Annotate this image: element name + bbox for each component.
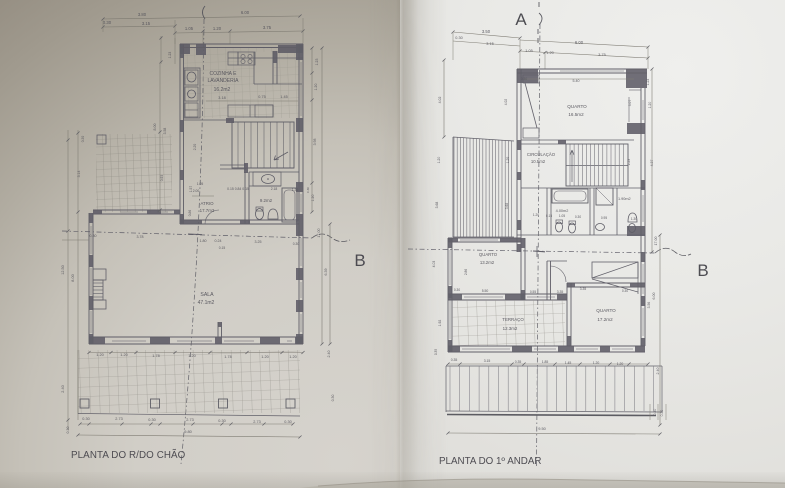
svg-text:1.20: 1.20 xyxy=(617,362,624,366)
svg-text:1.92: 1.92 xyxy=(438,320,442,327)
svg-text:2.20: 2.20 xyxy=(193,144,197,151)
svg-text:12.50: 12.50 xyxy=(61,265,65,275)
svg-text:CIRCULAÇÃO: CIRCULAÇÃO xyxy=(527,152,556,157)
svg-text:3.80: 3.80 xyxy=(138,12,147,17)
svg-text:0.86: 0.86 xyxy=(188,210,192,217)
svg-text:3.25: 3.25 xyxy=(255,240,262,244)
svg-text:0.30: 0.30 xyxy=(103,20,112,25)
svg-text:0.55: 0.55 xyxy=(530,290,536,294)
svg-text:16.5m2: 16.5m2 xyxy=(568,112,584,117)
svg-text:9.2m2: 9.2m2 xyxy=(260,198,273,203)
svg-text:2.18: 2.18 xyxy=(271,187,278,191)
svg-text:1.20: 1.20 xyxy=(96,353,103,357)
svg-text:QUARTO: QUARTO xyxy=(479,252,498,257)
svg-text:3.75: 3.75 xyxy=(598,53,605,57)
svg-text:1.05: 1.05 xyxy=(559,214,565,218)
svg-text:1.20: 1.20 xyxy=(289,355,296,359)
svg-text:16.2m2: 16.2m2 xyxy=(214,87,231,93)
svg-text:1.23: 1.23 xyxy=(646,79,650,86)
svg-text:0.30: 0.30 xyxy=(521,77,527,81)
svg-text:0.15 0.84 0.15: 0.15 0.84 0.15 xyxy=(227,187,249,191)
svg-text:2.86: 2.86 xyxy=(464,269,468,275)
svg-text:3.07: 3.07 xyxy=(628,100,632,107)
svg-text:17.2m2: 17.2m2 xyxy=(597,317,613,322)
svg-text:0.30: 0.30 xyxy=(218,419,225,423)
svg-text:COZINHA E: COZINHA E xyxy=(210,71,238,77)
svg-text:QUARTO: QUARTO xyxy=(596,308,616,313)
svg-text:0.30: 0.30 xyxy=(331,395,335,402)
svg-text:4.02: 4.02 xyxy=(438,97,442,104)
svg-text:1.20: 1.20 xyxy=(314,84,318,91)
svg-text:5.40: 5.40 xyxy=(573,79,580,83)
svg-text:1.78: 1.78 xyxy=(152,354,159,358)
svg-text:0.24: 0.24 xyxy=(215,239,222,243)
svg-text:1.23: 1.23 xyxy=(315,59,319,66)
svg-text:1.20: 1.20 xyxy=(546,51,553,55)
svg-text:0.30: 0.30 xyxy=(66,427,70,434)
svg-text:1.78: 1.78 xyxy=(224,355,231,359)
svg-text:1.05: 1.05 xyxy=(197,182,204,186)
svg-text:0.35: 0.35 xyxy=(434,349,438,355)
svg-text:0.15: 0.15 xyxy=(546,214,552,218)
svg-text:1.45: 1.45 xyxy=(565,361,572,365)
svg-text:10.5m2: 10.5m2 xyxy=(531,159,546,164)
svg-text:8.00: 8.00 xyxy=(71,274,75,281)
svg-text:3.15: 3.15 xyxy=(484,359,491,363)
svg-text:4.00m2: 4.00m2 xyxy=(556,209,569,213)
svg-text:1.20: 1.20 xyxy=(593,361,600,365)
svg-text:2.73: 2.73 xyxy=(186,418,193,422)
svg-text:0.30: 0.30 xyxy=(148,418,155,422)
svg-text:12.3m2: 12.3m2 xyxy=(503,326,518,331)
svg-text:PLANTA DO R/DO CHÃO: PLANTA DO R/DO CHÃO xyxy=(71,450,186,461)
svg-text:4.02: 4.02 xyxy=(504,99,508,106)
svg-text:0.15: 0.15 xyxy=(219,246,226,250)
svg-text:0.35: 0.35 xyxy=(515,360,522,364)
svg-text:3.68: 3.68 xyxy=(505,203,509,210)
svg-text:0.30: 0.30 xyxy=(455,36,462,40)
svg-text:1.20: 1.20 xyxy=(437,157,441,164)
svg-text:1.05: 1.05 xyxy=(185,26,194,31)
svg-text:B: B xyxy=(697,261,708,280)
svg-text:9.50: 9.50 xyxy=(538,426,546,431)
svg-text:1.20: 1.20 xyxy=(506,157,510,164)
svg-text:3.75: 3.75 xyxy=(263,25,272,30)
svg-text:1.20: 1.20 xyxy=(213,26,222,31)
svg-text:6.00: 6.00 xyxy=(241,10,250,15)
svg-text:1.20: 1.20 xyxy=(120,353,127,357)
svg-text:0.75: 0.75 xyxy=(258,95,265,99)
svg-text:0.30: 0.30 xyxy=(90,234,97,238)
svg-text:3.68: 3.68 xyxy=(435,202,439,209)
svg-text:A: A xyxy=(515,10,527,29)
svg-text:1.30: 1.30 xyxy=(292,188,299,192)
svg-text:3.14: 3.14 xyxy=(77,171,81,178)
svg-text:3.98: 3.98 xyxy=(313,139,317,146)
svg-text:6.00: 6.00 xyxy=(575,40,584,45)
svg-text:0.30: 0.30 xyxy=(81,136,85,143)
svg-text:2.40: 2.40 xyxy=(656,368,660,375)
svg-text:6.00: 6.00 xyxy=(652,293,656,300)
svg-text:2.40: 2.40 xyxy=(61,385,65,392)
svg-text:2.73: 2.73 xyxy=(253,420,260,424)
svg-text:1.20: 1.20 xyxy=(311,195,315,202)
svg-text:TERRAÇO: TERRAÇO xyxy=(502,317,524,322)
svg-text:1.90m2: 1.90m2 xyxy=(618,197,631,201)
svg-text:0.95: 0.95 xyxy=(601,216,607,220)
svg-text:QUARTO: QUARTO xyxy=(567,104,587,109)
svg-text:0.93: 0.93 xyxy=(160,175,164,182)
svg-text:1.20: 1.20 xyxy=(188,354,195,358)
svg-text:0.30: 0.30 xyxy=(306,187,310,193)
svg-text:1.20: 1.20 xyxy=(648,102,652,109)
svg-text:0.30: 0.30 xyxy=(284,420,291,424)
svg-text:2.73: 2.73 xyxy=(115,417,122,421)
svg-text:0.30: 0.30 xyxy=(82,417,89,421)
svg-text:3.50: 3.50 xyxy=(482,29,491,34)
svg-text:1.20: 1.20 xyxy=(533,213,539,217)
svg-text:3.35: 3.35 xyxy=(580,287,587,291)
svg-text:SALA: SALA xyxy=(200,292,214,298)
svg-text:PLANTA DO 1º ANDAR: PLANTA DO 1º ANDAR xyxy=(439,456,541,467)
svg-text:0.30: 0.30 xyxy=(653,409,657,416)
svg-text:1.85: 1.85 xyxy=(542,360,549,364)
svg-text:0.30: 0.30 xyxy=(575,215,581,219)
svg-text:1.57: 1.57 xyxy=(189,186,193,193)
svg-text:4.37: 4.37 xyxy=(650,160,654,167)
svg-text:3.56: 3.56 xyxy=(647,302,651,309)
svg-text:1.23: 1.23 xyxy=(168,52,172,59)
svg-text:47.1m2: 47.1m2 xyxy=(198,300,215,306)
svg-text:5.50: 5.50 xyxy=(482,289,489,293)
svg-text:3.15: 3.15 xyxy=(142,21,151,26)
svg-text:9.80: 9.80 xyxy=(184,429,192,434)
svg-text:0.30: 0.30 xyxy=(622,289,628,293)
svg-text:3.58: 3.58 xyxy=(163,128,167,135)
svg-text:1.20: 1.20 xyxy=(261,355,268,359)
svg-text:2.40: 2.40 xyxy=(327,351,331,358)
svg-text:17.00: 17.00 xyxy=(317,228,321,237)
svg-text:17.7m2: 17.7m2 xyxy=(200,208,215,213)
svg-text:13.2m2: 13.2m2 xyxy=(480,260,495,265)
svg-text:3.35: 3.35 xyxy=(557,290,564,294)
svg-text:0.35: 0.35 xyxy=(451,358,458,362)
svg-text:2.00: 2.00 xyxy=(193,189,200,193)
svg-text:8.00: 8.00 xyxy=(153,124,157,131)
svg-text:0.30: 0.30 xyxy=(660,410,664,417)
svg-text:ATRIO: ATRIO xyxy=(200,201,214,206)
svg-text:B: B xyxy=(354,251,365,270)
svg-text:4.03: 4.03 xyxy=(432,261,436,268)
svg-text:1.80: 1.80 xyxy=(200,239,207,243)
svg-text:2.29: 2.29 xyxy=(627,159,631,166)
svg-text:LAVANDERIA: LAVANDERIA xyxy=(208,78,240,84)
svg-text:0.30: 0.30 xyxy=(293,242,300,246)
svg-text:1.05: 1.05 xyxy=(525,49,532,53)
svg-text:6.39: 6.39 xyxy=(324,269,328,276)
svg-text:1.45: 1.45 xyxy=(280,95,287,99)
svg-text:17.00: 17.00 xyxy=(654,237,658,246)
svg-text:3.78: 3.78 xyxy=(137,235,144,239)
svg-text:3.18: 3.18 xyxy=(218,96,225,100)
svg-text:3.15: 3.15 xyxy=(486,42,493,46)
svg-text:0.30: 0.30 xyxy=(454,288,460,292)
